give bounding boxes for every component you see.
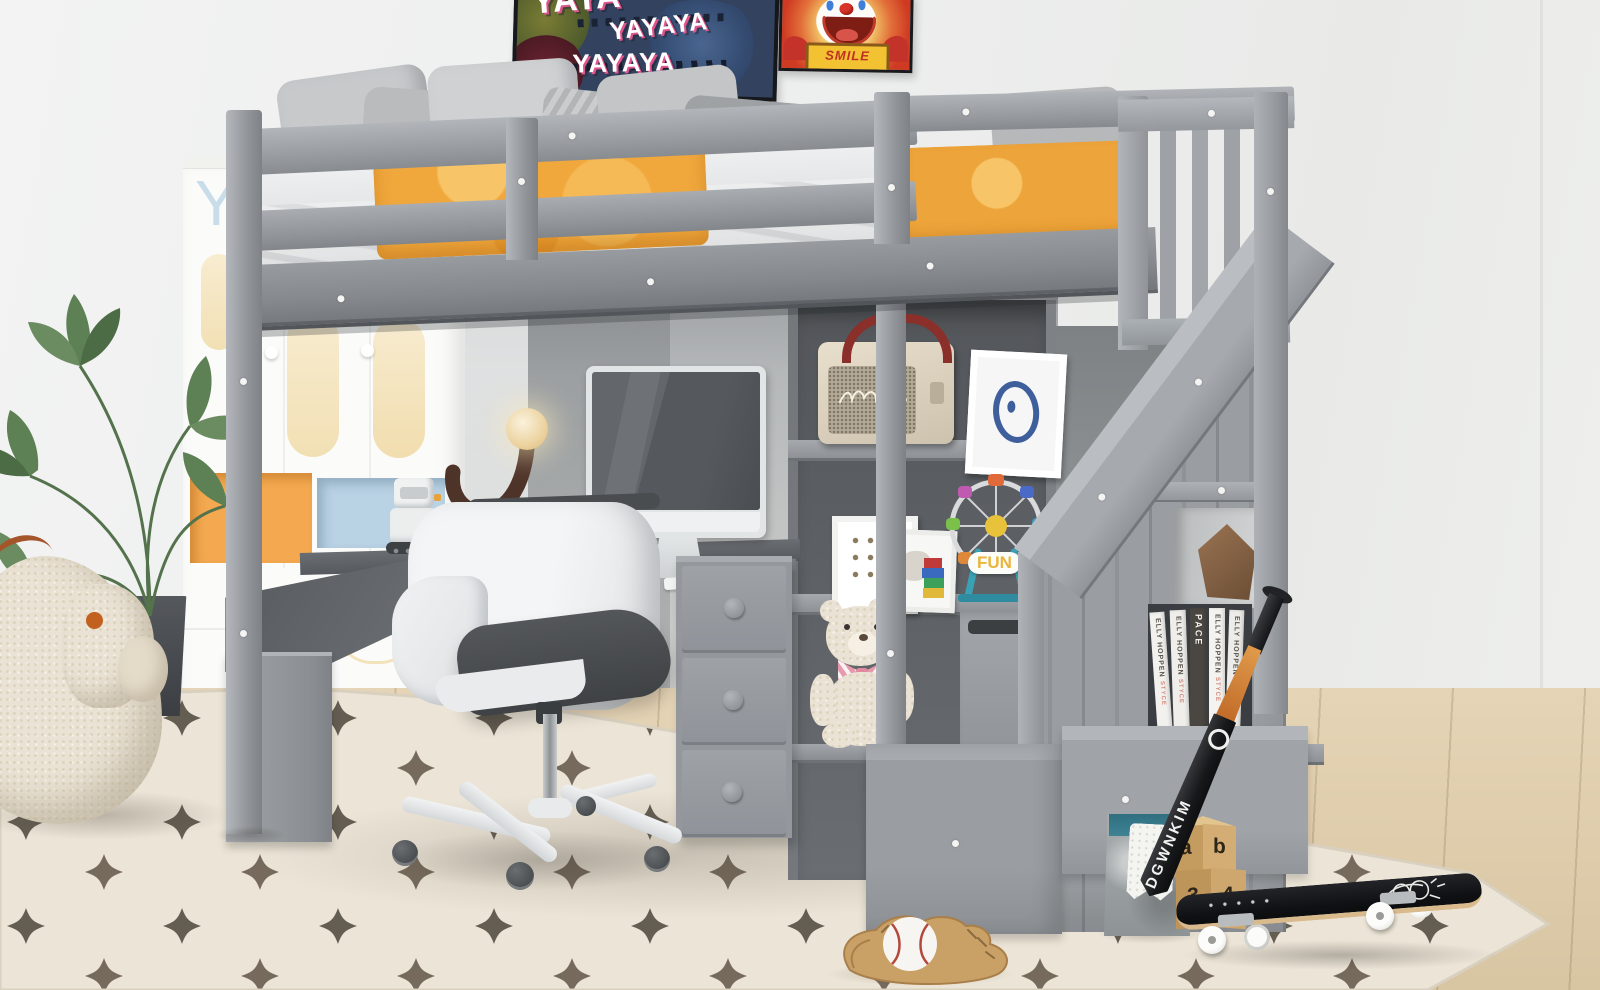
- stair-slat-1: [1160, 128, 1176, 320]
- stair-rail-post-left: [1118, 96, 1148, 350]
- book-title: ELLY HOPPEN: [1174, 616, 1183, 676]
- wardrobe-knob-2: [361, 344, 374, 357]
- deck-screw: [926, 262, 933, 269]
- book-title: ELLY HOPPEN: [1154, 618, 1165, 678]
- robot-visor: [400, 487, 428, 499]
- dark-spine-title: PACE: [1194, 614, 1204, 646]
- hat-decor: [1198, 524, 1256, 600]
- clown-poster: SMILE: [778, 0, 913, 73]
- book-subtitle: STYCE: [1177, 679, 1184, 704]
- drawer-knob-2: [723, 690, 743, 710]
- deck-screw: [337, 295, 344, 302]
- book-subtitle: STYCE: [1159, 680, 1167, 705]
- teddy-eye-left: [844, 624, 850, 630]
- bed-post-right: [874, 92, 910, 244]
- trim-screw: [1218, 487, 1225, 494]
- chair-wheel-2: [506, 862, 534, 890]
- deck-screw: [647, 278, 654, 285]
- skateboard-wheel-front: [1366, 902, 1394, 930]
- step-handle: [1122, 796, 1129, 803]
- wheel-bearing: [1376, 912, 1384, 920]
- drawer-knob-1: [724, 598, 744, 618]
- lamp-globe: [506, 408, 548, 450]
- bed-post-front-left: [226, 110, 262, 834]
- smile-sign-text: SMILE: [825, 48, 870, 64]
- skateboard-shadow: [1180, 940, 1500, 970]
- clown-tongue: [836, 29, 858, 41]
- rail-screw: [1208, 110, 1215, 117]
- post-screw-1: [887, 650, 894, 657]
- rail-screw: [962, 108, 969, 115]
- post-screw: [1267, 188, 1274, 195]
- block-letter-b: b: [1213, 835, 1226, 860]
- ferris-fun-label: FUN: [968, 552, 1021, 574]
- post-screw: [240, 630, 247, 637]
- sheep-muzzle: [118, 636, 168, 702]
- lego-blue: [922, 568, 944, 578]
- blue-art-oval: [990, 379, 1041, 445]
- deck-grip-dots: [1204, 898, 1274, 907]
- chair-wheel-3: [644, 846, 670, 872]
- drawer-unit: [676, 556, 792, 838]
- lego-green: [924, 578, 944, 588]
- handrail-screw: [1194, 377, 1204, 387]
- skateboard-truck-back: [1218, 913, 1255, 927]
- wardrobe-knob-1: [265, 346, 278, 359]
- baseball-glove: [818, 908, 1022, 990]
- wheel-bearing: [1208, 936, 1216, 944]
- room-scene: YAYA YAYAYA YAYAYA SMILE Y: [0, 0, 1600, 990]
- drawer-knob-3: [722, 782, 742, 802]
- stair-slat-2: [1192, 128, 1208, 320]
- chair-wheel-4: [576, 796, 596, 816]
- lego-red: [924, 558, 942, 568]
- skateboard-wheel-back-far: [1244, 924, 1270, 950]
- sheep-eye: [86, 612, 103, 629]
- post-screw: [240, 378, 247, 385]
- wardrobe-oval-3: [373, 318, 425, 458]
- lego-yellow: [923, 588, 944, 598]
- chair-wheel-1: [392, 840, 418, 866]
- speaker-side-latch: [930, 382, 944, 404]
- chair-gas-lift: [543, 714, 557, 804]
- skateboard-wheel-back: [1198, 926, 1226, 954]
- chair-hub: [528, 798, 572, 818]
- bed-post-mid: [506, 118, 538, 260]
- teddy-arm-left: [810, 674, 836, 726]
- step-box-low: [866, 744, 1062, 934]
- teddy-foot-left: [822, 722, 856, 748]
- smile-sign: SMILE: [805, 42, 890, 73]
- handrail-screw: [1097, 492, 1107, 502]
- post-screw: [518, 178, 525, 185]
- robot-antenna: [434, 494, 441, 501]
- rail-screw: [568, 132, 575, 139]
- book-title: ELLY HOPPEN: [1214, 614, 1221, 674]
- step-handle: [952, 840, 959, 847]
- teddy-nose: [859, 634, 868, 641]
- post-screw: [888, 184, 895, 191]
- frame-blue-art: [965, 350, 1067, 479]
